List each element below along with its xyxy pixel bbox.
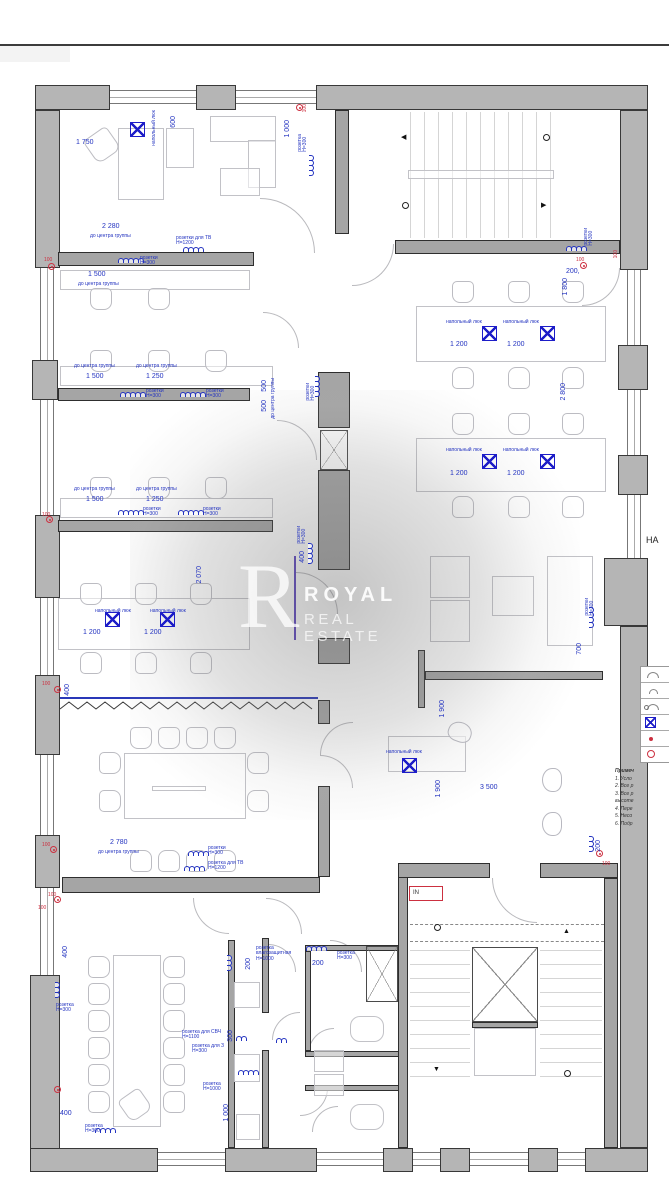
riser-shaft-cross: [320, 430, 348, 470]
window: [627, 270, 641, 345]
desk: [430, 556, 470, 598]
partition-wall: [540, 863, 618, 878]
chair: [90, 350, 112, 372]
red-circle-icon: [647, 750, 655, 758]
elevator-car: [474, 1028, 536, 1076]
text-label: НА: [646, 536, 659, 546]
stair-start-icon: [543, 134, 550, 141]
socket-symbol: [118, 258, 143, 263]
stair-step-line: [540, 950, 602, 951]
chair: [88, 1091, 110, 1113]
wall-segment: [32, 360, 58, 400]
stair-step-line: [540, 1062, 602, 1063]
chair: [190, 583, 212, 605]
dimension-label: 1 900: [439, 700, 447, 718]
partition-wall: [305, 951, 311, 1051]
window: [627, 390, 641, 455]
partition-wall: [228, 940, 235, 1148]
socket-label: розетка Н=300: [298, 134, 309, 152]
partition-wall: [58, 520, 273, 532]
door-arc: [320, 755, 353, 788]
socket-arc-icon: [198, 510, 204, 515]
legend-row-floor-hatch: [641, 715, 669, 731]
wall-segment: [225, 1148, 317, 1172]
chair: [163, 1091, 185, 1113]
red-dot-icon: [649, 737, 653, 741]
partition-wall: [262, 938, 269, 1013]
notes-block: Примеч1. Усло2. Все р3. Все рвысоте4. Пе…: [615, 768, 669, 828]
chair: [135, 652, 157, 674]
chair: [130, 850, 152, 872]
dimension-label: 1 900: [435, 780, 443, 798]
wall-segment: [316, 85, 648, 110]
stair-step-line: [540, 964, 602, 965]
stair-step-line: [410, 1048, 470, 1049]
chair: [214, 727, 236, 749]
socket-marker: [54, 1086, 61, 1093]
socket-symbol: [238, 1070, 258, 1075]
chair: [562, 496, 584, 518]
chair: [163, 1010, 185, 1032]
stair-start-icon: [564, 1070, 571, 1077]
window: [110, 90, 196, 104]
socket-symbol: [276, 1038, 286, 1043]
chair: [88, 1064, 110, 1086]
chair: [130, 727, 152, 749]
stair-step-line: [410, 950, 470, 951]
note-line: 6. Подр: [615, 821, 669, 829]
partition-wall: [604, 878, 618, 1148]
socket-marker: [596, 850, 603, 857]
socket-arc-icon: [200, 392, 206, 397]
wall-segment: [35, 110, 60, 268]
socket-label: розетка Н=1000: [203, 1082, 221, 1093]
wall-segment: [528, 1148, 558, 1172]
socket-arc-icon: [321, 946, 327, 951]
chair: [88, 1010, 110, 1032]
stair-step-line: [540, 992, 602, 993]
socket-symbol: [183, 247, 203, 252]
socket-symbol: [589, 607, 594, 627]
dimension-label: 200: [312, 960, 324, 968]
window: [40, 755, 54, 835]
chair: [88, 956, 110, 978]
socket-symbol: [309, 155, 314, 175]
stair-direction-icon: ◀: [401, 134, 406, 141]
partition-wall: [318, 786, 330, 877]
partition-wall: [425, 671, 603, 680]
chair: [148, 288, 170, 310]
note-line: 1. Усло: [615, 776, 669, 784]
socket-label: розетки для ТВ Н=1200: [176, 236, 211, 247]
desk: [152, 786, 206, 791]
desk: [60, 270, 250, 290]
socket-symbol: [188, 851, 208, 856]
door-arc: [272, 1012, 300, 1040]
desk: [210, 116, 276, 142]
socket-label: розетки Н=300: [297, 526, 308, 544]
wall-segment: [440, 1148, 470, 1172]
desk: [220, 168, 260, 196]
chair: [508, 496, 530, 518]
chair: [135, 583, 157, 605]
chair: [80, 583, 102, 605]
stair-step-line: [540, 1020, 602, 1021]
chair: [562, 413, 584, 435]
stair-step-line: [540, 1006, 602, 1007]
chair: [508, 367, 530, 389]
chair: [214, 850, 236, 872]
toilet: [350, 1016, 384, 1042]
socket-symbol: [236, 1036, 246, 1041]
stair-step-line: [540, 978, 602, 979]
door-arc: [277, 420, 317, 460]
socket-arc-icon: [589, 846, 594, 852]
partition-wall: [262, 1050, 269, 1148]
red-dimension-label: 100: [303, 104, 308, 112]
floor-hatch-icon: [402, 758, 417, 773]
socket-symbol: [178, 510, 203, 515]
stair-start-icon: [402, 202, 409, 209]
chair: [508, 413, 530, 435]
zigzag-partition: [60, 700, 318, 710]
dimension-label: 1 000: [284, 120, 292, 138]
socket-marker: [54, 896, 61, 903]
floor-hatch-icon: [540, 454, 555, 469]
chair: [452, 281, 474, 303]
stair-step-line: [410, 978, 470, 979]
chair: [562, 367, 584, 389]
partition-wall: [58, 388, 250, 401]
dimension-label: 2 070: [196, 566, 204, 584]
wall-segment: [604, 558, 648, 626]
stair-step-line: [410, 1076, 470, 1077]
stair-direction-icon: ▼: [433, 1066, 440, 1073]
stair-step-line: [540, 1034, 602, 1035]
wall-segment: [196, 85, 236, 110]
dimension-label: 2 780: [110, 839, 128, 847]
socket-marker: [46, 516, 53, 523]
socket-label: розетка для З Н=300: [192, 1044, 224, 1055]
chair: [148, 477, 170, 499]
wall-segment: [618, 455, 648, 495]
partition-wall: [318, 638, 350, 664]
partition-wall: [398, 863, 490, 878]
socket-marker: [54, 686, 61, 693]
socket-symbol: [184, 866, 204, 871]
socket-symbol: [55, 982, 60, 997]
stair-step-line: [410, 1034, 470, 1035]
partition-wall: [318, 470, 350, 570]
desk: [314, 1074, 344, 1096]
dimension-label: 200,: [566, 268, 580, 276]
stair-step-line: [410, 992, 470, 993]
dimension-label: 400: [62, 946, 70, 958]
floor-hatch-icon: [130, 122, 145, 137]
window: [40, 598, 54, 675]
socket-symbol: [306, 946, 326, 951]
entry-label: IN: [413, 890, 419, 896]
door-arc: [260, 198, 315, 253]
stair-start-icon: [434, 924, 441, 931]
door-arc: [352, 244, 394, 286]
note-line: 3. Все р: [615, 791, 669, 799]
wall-segment: [618, 345, 648, 390]
chair: [452, 413, 474, 435]
door-arc: [492, 878, 537, 923]
stair-step-line: [540, 1048, 602, 1049]
socket-arc-icon: [309, 170, 314, 176]
note-line: 4. Пере: [615, 806, 669, 814]
window: [413, 1152, 440, 1166]
stair-step-line: [410, 1020, 470, 1021]
chair: [508, 281, 530, 303]
socket-symbol: [315, 376, 320, 396]
desk: [430, 600, 470, 642]
chair: [190, 652, 212, 674]
partition-wall: [62, 877, 320, 893]
legend-row-socket-arc-small: [641, 683, 669, 699]
chair: [99, 752, 121, 774]
floor-hatch-icon: [645, 717, 656, 728]
partition-wall: [318, 700, 330, 724]
socket-marker: [580, 262, 587, 269]
desk: [236, 1114, 260, 1140]
chair: [163, 1064, 185, 1086]
chair: [158, 727, 180, 749]
window: [627, 495, 641, 558]
door-arc: [296, 572, 338, 614]
chair: [562, 281, 584, 303]
door-arc: [263, 312, 299, 348]
window: [40, 888, 54, 975]
dimension-label: 400: [299, 551, 307, 563]
door-arc: [582, 268, 620, 306]
socket-arc-icon: [581, 246, 587, 251]
socket-arc-icon: [140, 392, 146, 397]
chair: [247, 790, 269, 812]
chair: [163, 1037, 185, 1059]
dimension-label: 600: [170, 116, 178, 128]
chair: [186, 727, 208, 749]
window: [40, 400, 54, 515]
wall-segment: [35, 515, 60, 598]
desk: [60, 498, 273, 518]
socket-arc-icon: [589, 622, 594, 628]
dimension-label: 3 500: [480, 784, 498, 792]
window: [158, 1152, 225, 1166]
socket-symbol: [120, 392, 145, 397]
partition-wall: [318, 372, 350, 428]
socket-arc-icon: [281, 1038, 287, 1043]
desk: [314, 1050, 344, 1072]
socket-symbol: [95, 1128, 115, 1133]
entry-marker: IN: [409, 886, 443, 901]
socket-symbol: [308, 543, 313, 563]
legend-row-socket-circle-arc: [641, 699, 669, 715]
elevator-shaft: [472, 947, 538, 1022]
chair: [452, 496, 474, 518]
desk: [547, 556, 593, 646]
socket-arc-icon: [308, 558, 313, 564]
chair: [90, 477, 112, 499]
partition-wall: [418, 650, 425, 708]
desk: [234, 982, 260, 1008]
desk: [166, 128, 194, 168]
socket-arc-icon: [138, 510, 144, 515]
stair-step-line: [410, 1062, 470, 1063]
chair: [205, 350, 227, 372]
socket-arc-icon: [199, 866, 205, 871]
socket-arc-icon: [198, 247, 204, 252]
chair: [452, 367, 474, 389]
chair: [80, 652, 102, 674]
floor-hatch-icon: [482, 326, 497, 341]
partition-wall: [335, 110, 349, 234]
socket-symbol: [566, 246, 586, 251]
socket-arc-icon: [138, 258, 144, 263]
desk: [58, 598, 250, 650]
legend-row-socket-arc: [641, 667, 669, 683]
chair: [163, 983, 185, 1005]
socket-symbol: [180, 392, 205, 397]
wall-segment: [30, 975, 60, 1172]
floor-hatch-icon: [160, 612, 175, 627]
socket-arc-small-icon: [649, 689, 658, 694]
notes-title: Примеч: [615, 768, 669, 776]
legend-row-red-circle: [641, 747, 669, 762]
socket-marker: [50, 846, 57, 853]
note-line: 2. Все р: [615, 783, 669, 791]
floor-hatch-icon: [105, 612, 120, 627]
stair-direction-icon: ▶: [541, 202, 546, 209]
stair-dashed-line: [410, 941, 604, 942]
rounded-chair: [542, 812, 562, 836]
chair: [99, 790, 121, 812]
desk: [416, 306, 606, 362]
socket-arc-icon: [203, 851, 209, 856]
dimension-label: 400: [64, 684, 72, 696]
floor-hatch-icon: [540, 326, 555, 341]
dimension-label: 400: [60, 1110, 72, 1118]
chair: [88, 983, 110, 1005]
toilet: [350, 1104, 384, 1130]
desk: [416, 438, 606, 492]
desk: [118, 128, 164, 200]
dimension-label: 500: [261, 400, 269, 412]
chair: [90, 288, 112, 310]
window: [470, 1152, 528, 1166]
wall-segment: [30, 1148, 158, 1172]
desk: [388, 736, 466, 772]
chair: [88, 1037, 110, 1059]
socket-symbol: [227, 955, 232, 970]
socket-arc-icon: [241, 1036, 247, 1041]
dimension-label: 2 280: [102, 223, 120, 231]
window: [236, 90, 316, 104]
wall-segment: [383, 1148, 413, 1172]
rounded-chair: [542, 768, 562, 792]
wall-segment: [35, 85, 110, 110]
floor-plan: R ROYAL REAL ESTATE IN Примеч1. Усло2. В…: [0, 0, 669, 1200]
chair: [158, 850, 180, 872]
wall-segment: [35, 835, 60, 888]
legend-row-red-dot: [641, 731, 669, 747]
shower-cross: [366, 946, 398, 1002]
window: [40, 268, 54, 360]
chair: [148, 350, 170, 372]
door-arc: [268, 944, 296, 972]
socket-marker: [296, 104, 303, 111]
legend-table: [640, 666, 669, 763]
note-line: высоте: [615, 798, 669, 806]
door-arc: [320, 722, 353, 755]
socket-label: розетка для СВЧ Н=1100: [182, 1030, 221, 1041]
stair-step-line: [410, 964, 470, 965]
partition-line: [60, 697, 318, 699]
stair-direction-icon: ▲: [563, 928, 570, 935]
note-line: 5. Несо: [615, 813, 669, 821]
socket-arc-icon: [647, 672, 659, 678]
socket-symbol: [589, 836, 594, 851]
chair: [205, 477, 227, 499]
socket-marker: [48, 263, 55, 270]
screenshot-root: R ROYAL REAL ESTATE IN Примеч1. Усло2. В…: [0, 0, 669, 1200]
stair-step-line: [410, 1006, 470, 1007]
door-arc: [193, 898, 229, 934]
desk: [492, 576, 534, 616]
dimension-label: 200: [245, 958, 253, 970]
chair: [163, 956, 185, 978]
window: [317, 1152, 383, 1166]
stair-divider: [408, 170, 554, 179]
window: [558, 1152, 585, 1166]
socket-symbol: [118, 510, 143, 515]
chair: [83, 126, 122, 165]
chair: [247, 752, 269, 774]
door-arc: [266, 898, 302, 934]
partition-line: [294, 556, 296, 640]
partition-wall: [398, 863, 408, 1148]
floor-hatch-icon: [482, 454, 497, 469]
socket-arc-icon: [110, 1128, 116, 1133]
circle-icon: [644, 705, 649, 710]
wall-segment: [585, 1148, 648, 1172]
partition-wall: [58, 252, 254, 266]
socket-label: до центра группы: [90, 234, 131, 239]
socket-arc-icon: [253, 1070, 259, 1075]
desk: [234, 1054, 260, 1082]
stair-step-line: [540, 1076, 602, 1077]
wall-segment: [620, 110, 648, 270]
